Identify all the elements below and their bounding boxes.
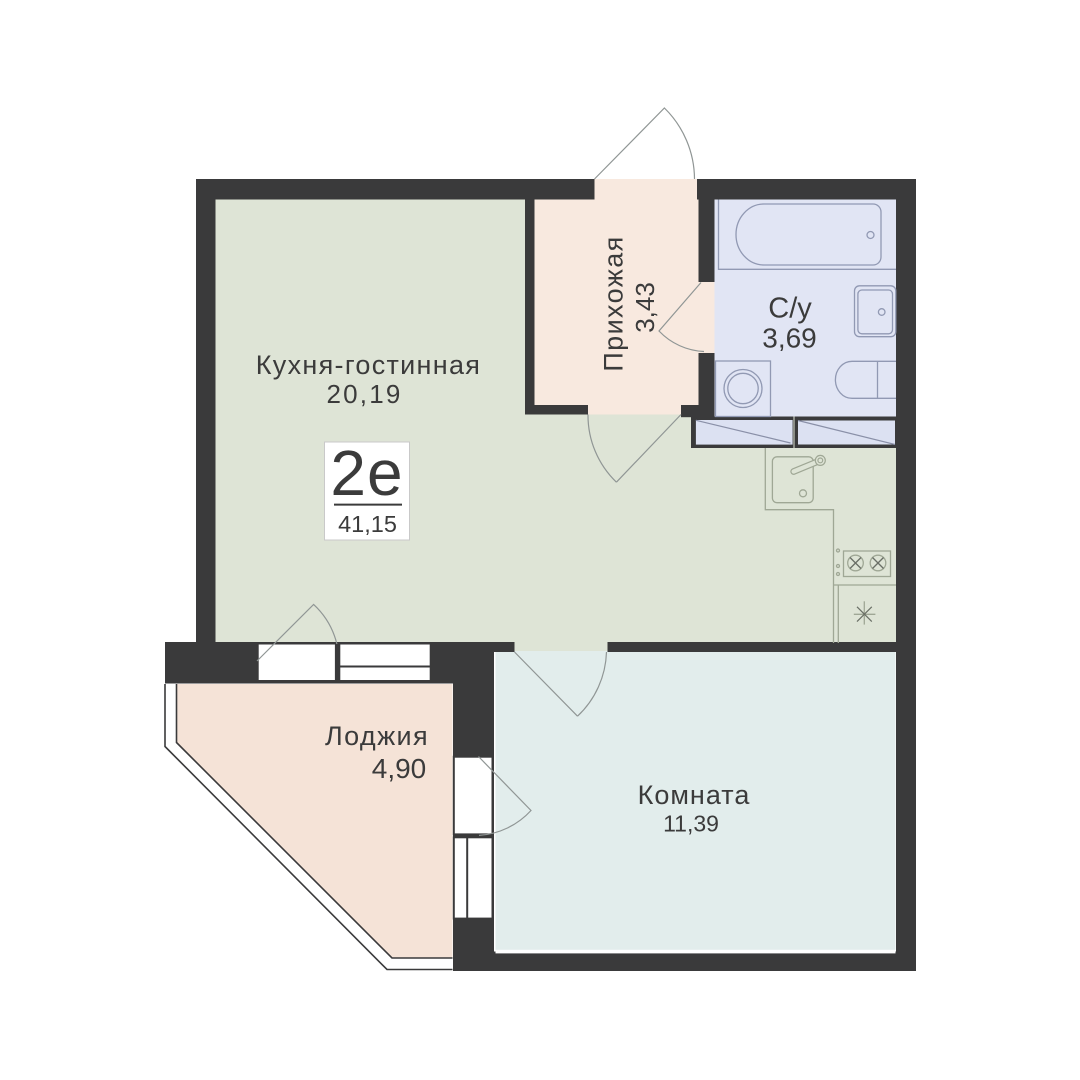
- svg-text:Кухня-гостинная: Кухня-гостинная: [256, 350, 481, 380]
- svg-text:41,15: 41,15: [338, 511, 397, 537]
- svg-text:С/у: С/у: [768, 293, 812, 325]
- svg-text:4,90: 4,90: [372, 753, 427, 784]
- svg-text:Лоджия: Лоджия: [325, 721, 429, 751]
- svg-text:2е: 2е: [330, 437, 403, 509]
- svg-text:Комната: Комната: [638, 780, 751, 810]
- svg-text:Прихожая: Прихожая: [599, 235, 629, 371]
- svg-text:3,43: 3,43: [630, 282, 660, 333]
- svg-text:11,39: 11,39: [663, 811, 719, 837]
- svg-text:20,19: 20,19: [326, 379, 402, 409]
- svg-text:3,69: 3,69: [762, 323, 817, 354]
